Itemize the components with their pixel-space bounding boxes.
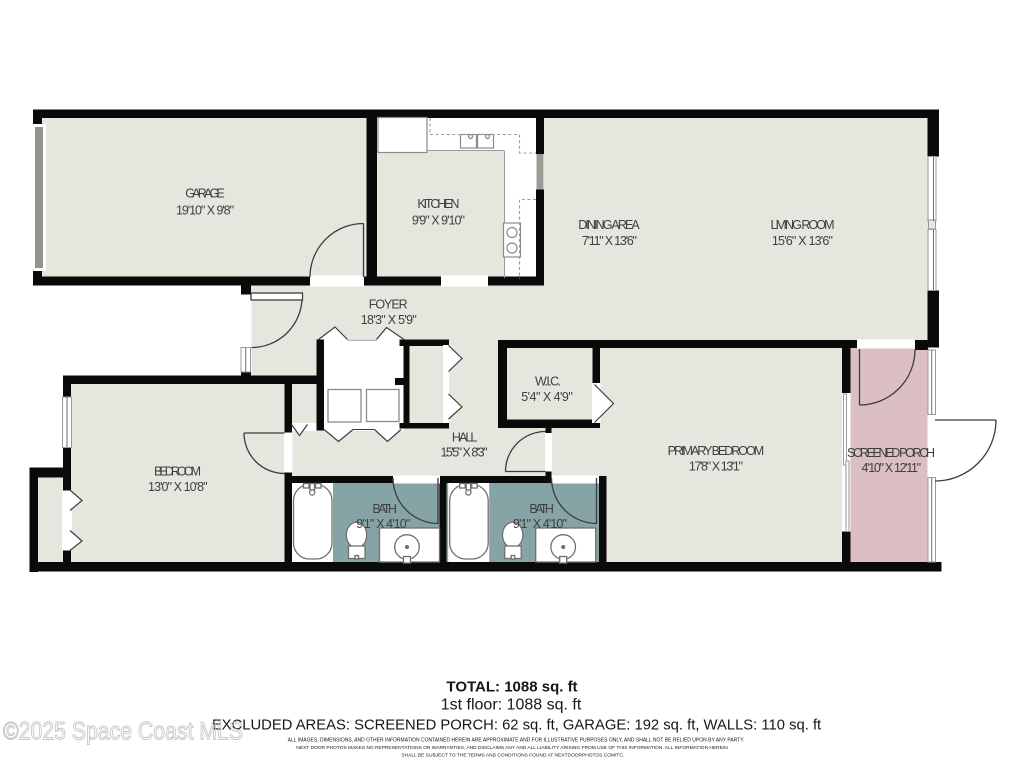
svg-text:NEXT DOOR PHOTOS MAKES NO REPR: NEXT DOOR PHOTOS MAKES NO REPRESENTATION… <box>296 745 728 751</box>
svg-text:BATH: BATH <box>529 502 554 516</box>
svg-text:TOTAL: 1088 sq. ft: TOTAL: 1088 sq. ft <box>446 678 577 695</box>
svg-text:5'4" X 4'9": 5'4" X 4'9" <box>521 390 573 404</box>
svg-text:GARAGE: GARAGE <box>185 187 225 201</box>
svg-text:©2025 Space Coast MLS: ©2025 Space Coast MLS <box>3 718 243 746</box>
svg-text:17'8" X 13'1": 17'8" X 13'1" <box>689 460 743 474</box>
svg-text:BEDROOM: BEDROOM <box>154 465 201 479</box>
svg-text:EXCLUDED AREAS: SCREENED PORCH: EXCLUDED AREAS: SCREENED PORCH: 62 sq. f… <box>212 718 821 734</box>
svg-text:FOYER: FOYER <box>369 298 408 312</box>
svg-text:DINING AREA: DINING AREA <box>578 218 640 232</box>
svg-text:W.I.C.: W.I.C. <box>535 375 561 389</box>
svg-text:LIVING ROOM: LIVING ROOM <box>771 218 835 232</box>
svg-text:9'1" X 4'10": 9'1" X 4'10" <box>356 517 410 531</box>
svg-text:HALL: HALL <box>452 431 478 445</box>
svg-text:7'11" X 13'6": 7'11" X 13'6" <box>582 234 637 248</box>
svg-text:19'10" X 9'8": 19'10" X 9'8" <box>176 204 234 218</box>
svg-text:15'6" X 13'6": 15'6" X 13'6" <box>772 234 833 248</box>
svg-text:BATH: BATH <box>372 502 397 516</box>
svg-text:ALL IMAGES, DIMENSIONS, AND OT: ALL IMAGES, DIMENSIONS, AND OTHER INFORM… <box>288 738 745 744</box>
svg-text:4'10" X 12'11": 4'10" X 12'11" <box>862 461 922 475</box>
svg-text:KITCHEN: KITCHEN <box>417 197 459 211</box>
svg-text:15'5" X 8'3": 15'5" X 8'3" <box>441 446 488 460</box>
svg-text:PRIMARY BEDROOM: PRIMARY BEDROOM <box>668 444 765 458</box>
svg-text:18'3" X 5'9": 18'3" X 5'9" <box>361 313 417 327</box>
svg-text:SHALL BE SUBJECT TO THE TERMS: SHALL BE SUBJECT TO THE TERMS AND CONDIT… <box>401 753 624 759</box>
svg-text:1st floor: 1088 sq. ft: 1st floor: 1088 sq. ft <box>441 697 582 714</box>
svg-text:SCREENED PORCH: SCREENED PORCH <box>847 446 935 460</box>
svg-text:9'9" X 9'10": 9'9" X 9'10" <box>412 214 465 228</box>
svg-text:13'0" X 10'8": 13'0" X 10'8" <box>148 480 208 494</box>
svg-text:9'1" X 4'10": 9'1" X 4'10" <box>513 517 567 531</box>
